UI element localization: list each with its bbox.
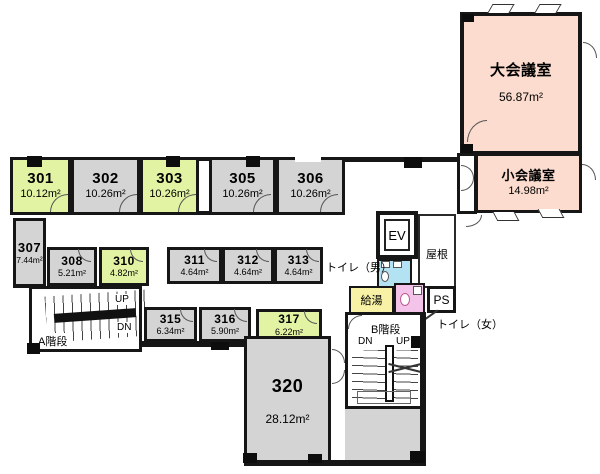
outer-wall [420,312,426,465]
window-vent-icon [538,209,565,218]
floor-plan: 301 10.12m² 302 10.26m² 303 10.26m² 305 … [0,0,600,474]
pipe-shaft-box: PS [427,286,456,313]
room-311-number: 311 [184,253,205,267]
stair-landing-outline [357,391,411,404]
door-tab [166,156,180,167]
room-312-area: 4.64m² [234,267,262,278]
wall-pillar [404,157,422,168]
stairs-b-up: UP [396,336,410,347]
room-302-area: 10.26m² [85,188,125,201]
door-arc [466,215,482,227]
stairs-b-dn: DN [358,336,372,347]
corner-pillar [243,453,257,463]
stairs-b-label: B階段 [371,321,400,337]
wall-segment [199,157,209,161]
door-arc [582,164,596,180]
room-310-area: 4.82m² [110,268,138,279]
room-312-number: 312 [237,253,259,267]
room-320: 320 28.12m² [244,336,331,466]
stairs-a-dn: DN [116,322,132,333]
room-307-number: 307 [18,240,41,256]
elevator-label: EV [388,228,405,243]
room-311-area: 4.64m² [180,267,208,278]
elevator: EV [384,219,410,251]
window-gap [295,156,321,162]
roof-label: 屋根 [426,246,448,262]
door-arc [583,42,597,58]
small-meeting-room: 小会議室 14.98m² [475,153,582,213]
room-315-area: 6.34m² [156,326,184,337]
small-meeting-room-area: 14.98m² [508,185,548,198]
room-316-number: 316 [214,312,236,326]
corner-pillar [461,144,473,153]
toilet-fixture [400,293,410,306]
room-307-area: 7.44m² [16,255,42,265]
corner-pillar [462,14,474,22]
room-303-number: 303 [156,170,183,188]
corridor-wall [343,157,461,162]
corner-pillar [308,454,322,463]
stairs-a-label: A階段 [37,333,68,349]
stairs-a-up: UP [114,294,130,305]
room-316-area: 5.90m² [211,326,239,337]
room-315-number: 315 [160,312,182,326]
room-317-number: 317 [278,312,300,326]
door-arc [332,349,345,363]
corner-pillar [410,451,425,463]
room-306-number: 306 [297,170,324,188]
pipe-shaft-label: PS [433,293,449,307]
room-301-number: 301 [27,170,54,188]
door-tab [27,156,42,167]
hot-water-label: 給湯 [361,295,383,308]
sink-fixture [393,261,402,268]
room-302-number: 302 [92,170,119,188]
wall-segment [199,211,209,215]
window-vent-icon [493,212,520,221]
roof-area: 屋根 [418,214,456,288]
outer-wall [244,460,426,466]
large-meeting-room-name: 大会議室 [490,62,552,80]
room-305-number: 305 [229,170,256,188]
room-313-number: 313 [288,253,310,267]
small-meeting-room-name: 小会議室 [501,168,555,184]
room-313-area: 4.64m² [284,267,312,278]
stairs-a: UP DN A階段 [29,286,142,352]
toilet-women-label: トイレ（女） [437,316,503,332]
toilet-men-label: トイレ（男） [326,259,392,275]
room-320-area: 28.12m² [265,412,309,426]
door-arc [332,370,345,384]
large-meeting-room-area: 56.87m² [499,90,543,104]
sink-fixture [413,286,422,295]
room-320-number: 320 [272,376,304,398]
door-tab [246,156,260,167]
corner-pillar [27,343,40,354]
room-308-area: 5.21m² [58,268,86,279]
room-307: 307 7.44m² [13,218,46,287]
